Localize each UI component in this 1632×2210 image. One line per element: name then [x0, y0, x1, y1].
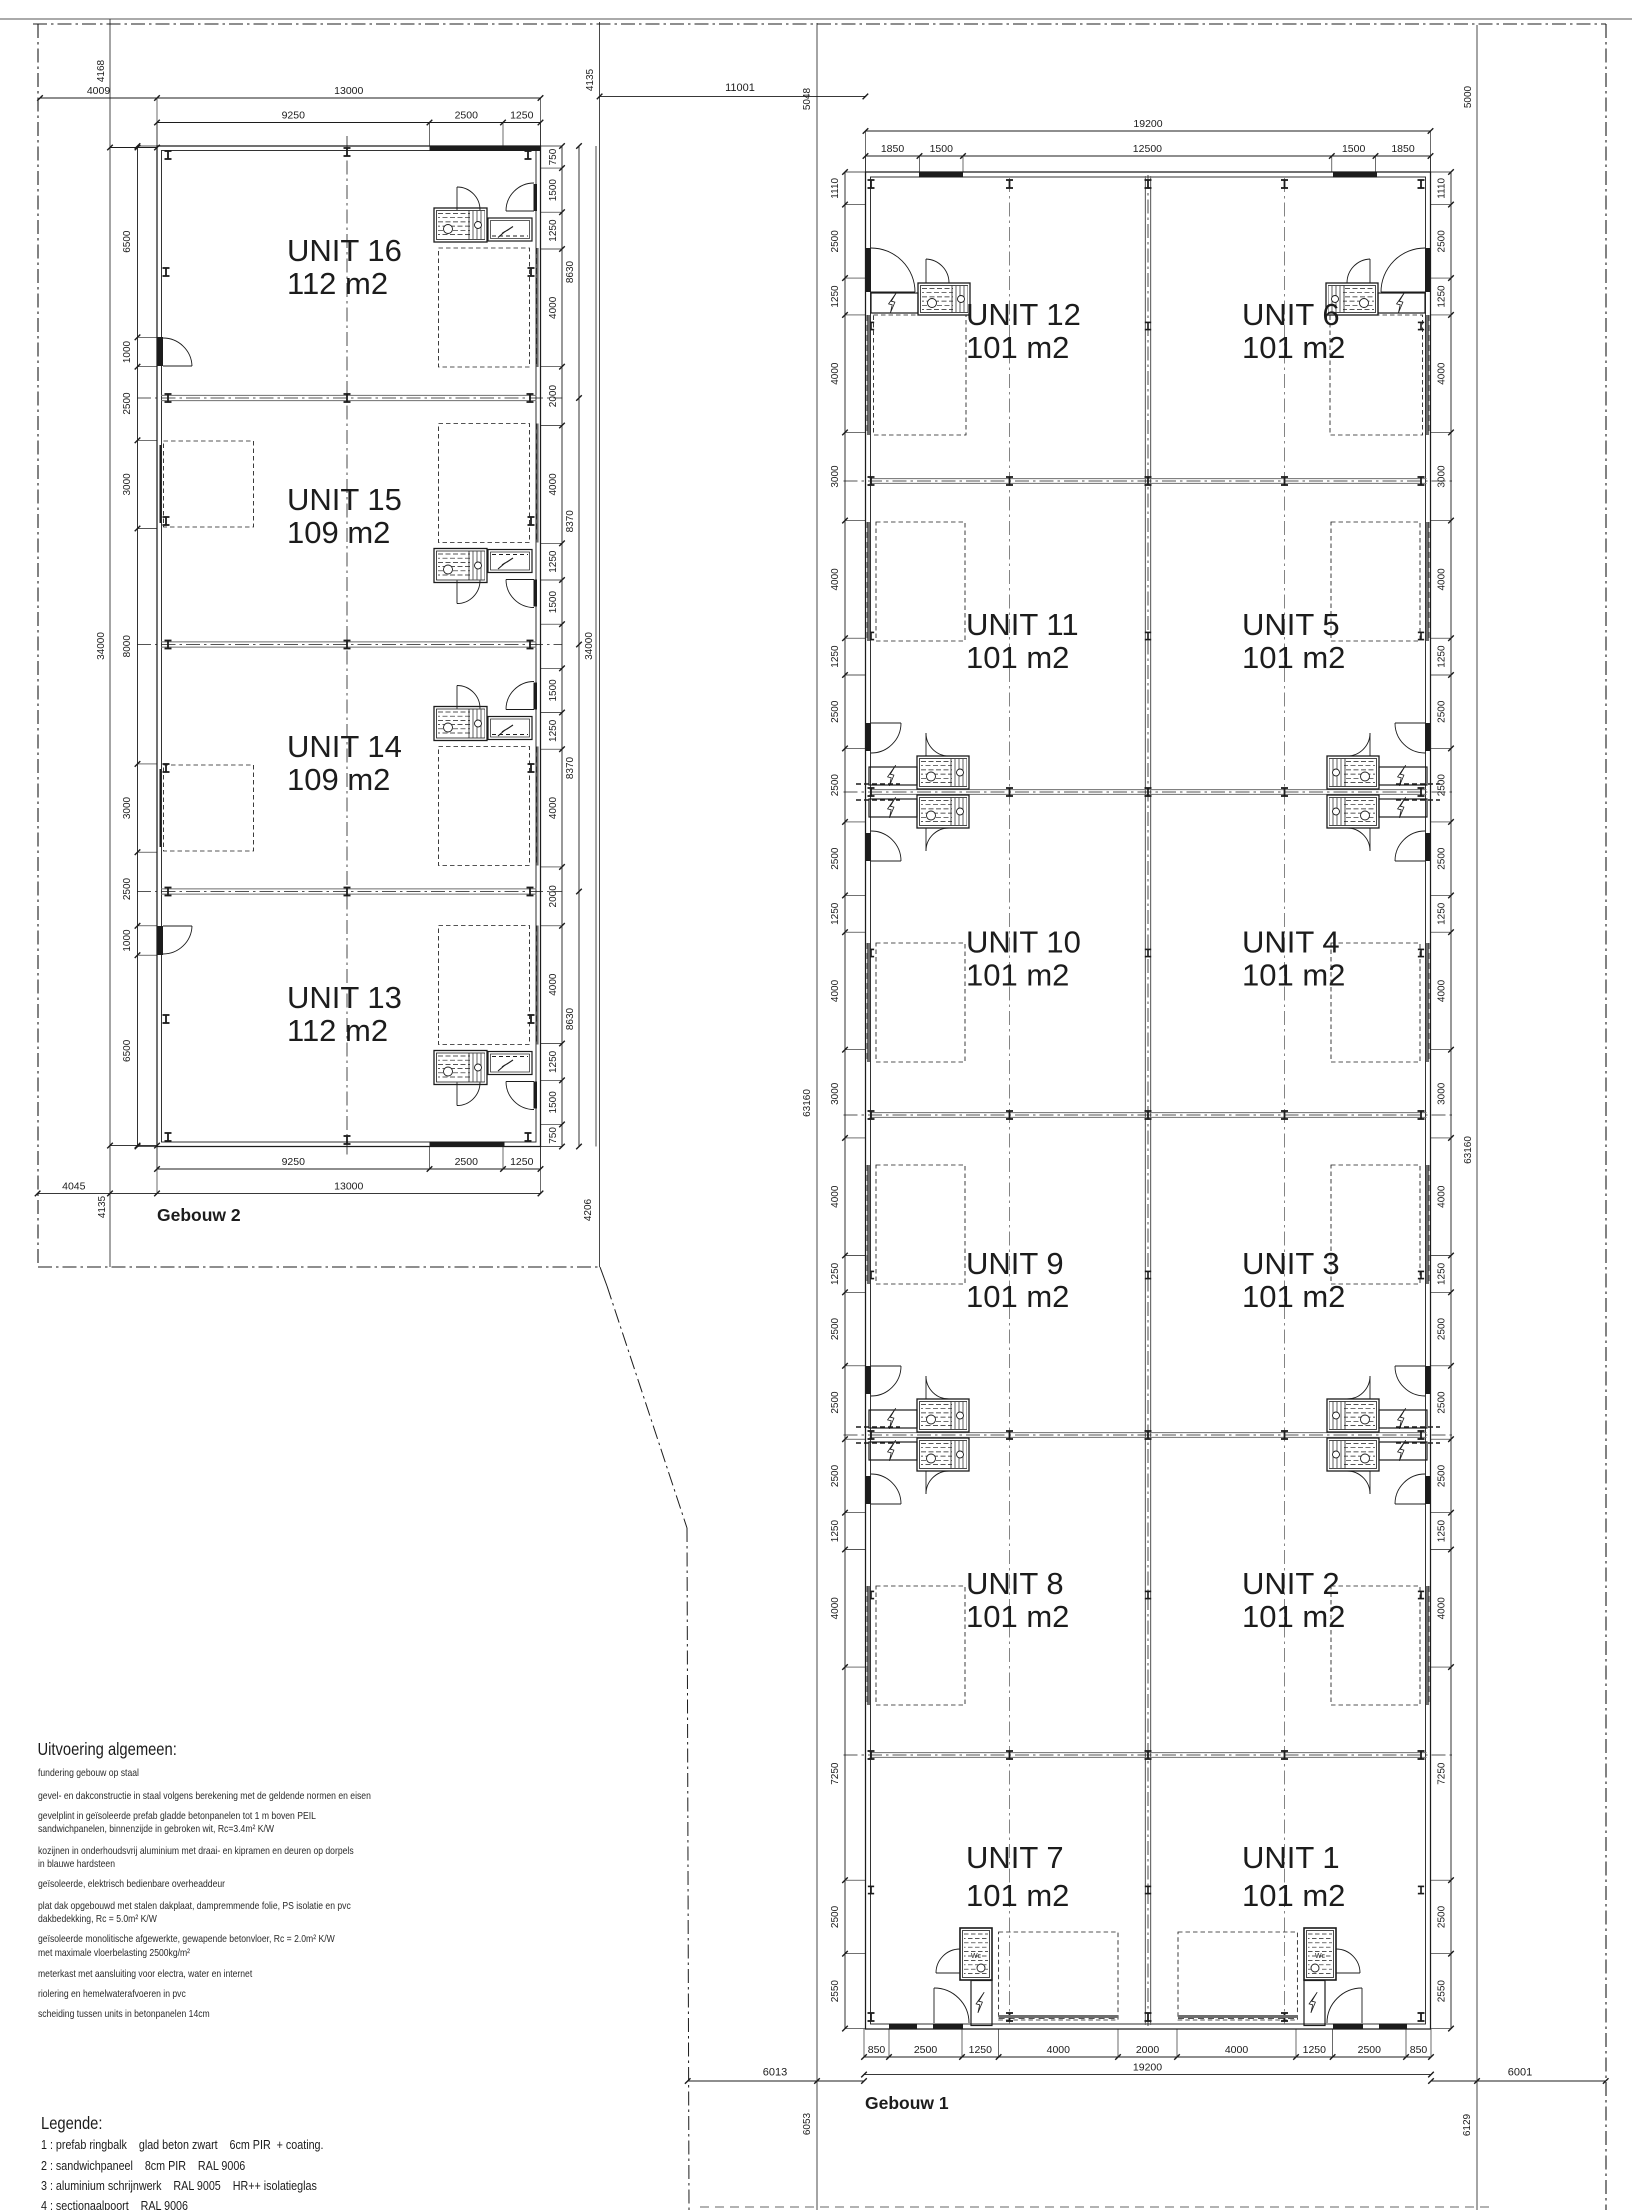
- svg-text:4000: 4000: [830, 1185, 841, 1208]
- svg-text:4000: 4000: [1225, 2044, 1249, 2056]
- svg-text:8370: 8370: [565, 756, 576, 779]
- svg-text:4000: 4000: [548, 973, 559, 996]
- svg-text:4000: 4000: [548, 796, 559, 819]
- svg-text:4135: 4135: [97, 1195, 108, 1218]
- svg-text:34000: 34000: [584, 632, 595, 660]
- svg-text:4009: 4009: [87, 85, 111, 97]
- svg-text:UNIT 13: UNIT 13: [287, 980, 402, 1015]
- svg-text:1250: 1250: [510, 1156, 534, 1168]
- svg-text:1500: 1500: [548, 179, 559, 202]
- svg-text:3000: 3000: [122, 796, 133, 819]
- svg-text:4 : sectionaalpoort RAL 900: 4 : sectionaalpoort RAL 9006: [41, 2199, 188, 2210]
- svg-text:1850: 1850: [1391, 143, 1415, 155]
- svg-text:2500: 2500: [1437, 774, 1448, 797]
- svg-text:5000: 5000: [1463, 85, 1474, 108]
- svg-text:meterkast met aansluiting voor: meterkast met aansluiting voor electra, …: [38, 1968, 253, 1980]
- svg-text:101 m2: 101 m2: [966, 640, 1069, 675]
- svg-text:gevelplint in geïsoleerde pref: gevelplint in geïsoleerde prefab gladde …: [38, 1810, 316, 1822]
- svg-text:dakbedekking, Rc = 5.0m² K/W: dakbedekking, Rc = 5.0m² K/W: [38, 1913, 158, 1925]
- svg-text:112 m2: 112 m2: [287, 1013, 388, 1048]
- svg-text:63160: 63160: [802, 1089, 813, 1117]
- svg-text:1500: 1500: [548, 591, 559, 614]
- svg-text:63160: 63160: [1463, 1136, 1474, 1164]
- svg-text:Gebouw 2: Gebouw 2: [157, 1205, 241, 1225]
- svg-text:4000: 4000: [830, 362, 841, 385]
- svg-text:2500: 2500: [1437, 700, 1448, 723]
- svg-text:4000: 4000: [1437, 979, 1448, 1002]
- svg-text:2500: 2500: [1437, 1464, 1448, 1487]
- svg-text:1250: 1250: [548, 550, 559, 573]
- svg-text:12500: 12500: [1133, 143, 1162, 155]
- svg-text:2500: 2500: [914, 2044, 938, 2056]
- svg-text:4000: 4000: [548, 296, 559, 319]
- svg-text:1 : prefab ringbalk glad be: 1 : prefab ringbalk glad beton zwart 6cm…: [41, 2138, 324, 2152]
- svg-text:1250: 1250: [830, 1520, 841, 1543]
- svg-text:1250: 1250: [830, 902, 841, 925]
- svg-text:1250: 1250: [548, 219, 559, 242]
- svg-text:1110: 1110: [830, 177, 841, 198]
- svg-text:1250: 1250: [1437, 1520, 1448, 1543]
- svg-text:Gebouw 1: Gebouw 1: [865, 2093, 949, 2113]
- svg-text:UNIT 12: UNIT 12: [966, 297, 1081, 332]
- svg-text:geïsoleerde monolitische afgew: geïsoleerde monolitische afgewerkte, gew…: [38, 1933, 336, 1945]
- svg-text:1250: 1250: [1437, 645, 1448, 668]
- svg-text:101 m2: 101 m2: [1242, 1599, 1345, 1634]
- svg-text:13000: 13000: [334, 85, 363, 97]
- svg-text:101 m2: 101 m2: [966, 330, 1069, 365]
- svg-text:101 m2: 101 m2: [1242, 1878, 1345, 1913]
- svg-text:4045: 4045: [62, 1180, 86, 1192]
- svg-text:109 m2: 109 m2: [287, 515, 390, 550]
- svg-text:1850: 1850: [881, 143, 905, 155]
- svg-text:UNIT 9: UNIT 9: [966, 1246, 1064, 1281]
- svg-text:8370: 8370: [565, 510, 576, 533]
- svg-text:101 m2: 101 m2: [1242, 640, 1345, 675]
- svg-text:1500: 1500: [930, 143, 954, 155]
- svg-text:7250: 7250: [830, 1762, 841, 1785]
- svg-text:2500: 2500: [830, 1905, 841, 1928]
- svg-text:19200: 19200: [1133, 118, 1162, 130]
- svg-text:plat dak opgebouwd met stalen: plat dak opgebouwd met stalen dakplaat, …: [38, 1900, 351, 1912]
- svg-text:8630: 8630: [565, 1007, 576, 1030]
- svg-text:4000: 4000: [1437, 568, 1448, 591]
- svg-text:6053: 6053: [802, 2112, 813, 2135]
- svg-text:1250: 1250: [548, 1050, 559, 1073]
- svg-text:UNIT 15: UNIT 15: [287, 482, 402, 517]
- svg-text:1250: 1250: [1437, 1262, 1448, 1285]
- svg-text:4000: 4000: [548, 473, 559, 496]
- svg-text:2000: 2000: [1136, 2044, 1160, 2056]
- svg-text:4206: 4206: [583, 1198, 594, 1221]
- svg-text:UNIT 8: UNIT 8: [966, 1566, 1064, 1601]
- svg-text:UNIT 4: UNIT 4: [1242, 925, 1340, 960]
- svg-text:2000: 2000: [548, 885, 559, 908]
- svg-text:Legende:: Legende:: [41, 2114, 102, 2134]
- svg-text:sandwichpanelen, binnenzijde i: sandwichpanelen, binnenzijde in gebroken…: [38, 1823, 275, 1835]
- svg-text:2550: 2550: [830, 1980, 841, 2003]
- svg-text:19200: 19200: [1133, 2062, 1162, 2074]
- svg-text:1500: 1500: [548, 679, 559, 702]
- svg-text:2000: 2000: [548, 385, 559, 408]
- svg-text:1250: 1250: [510, 110, 534, 122]
- svg-text:7250: 7250: [1437, 1762, 1448, 1785]
- svg-text:101 m2: 101 m2: [966, 1878, 1069, 1913]
- svg-text:2500: 2500: [830, 847, 841, 870]
- svg-text:109 m2: 109 m2: [287, 762, 390, 797]
- svg-text:4000: 4000: [1047, 2044, 1071, 2056]
- svg-text:5048: 5048: [802, 87, 813, 110]
- svg-text:1250: 1250: [830, 645, 841, 668]
- svg-text:6129: 6129: [1462, 2113, 1473, 2136]
- svg-text:1500: 1500: [548, 1091, 559, 1114]
- svg-text:2500: 2500: [455, 110, 479, 122]
- svg-text:2500: 2500: [830, 700, 841, 723]
- svg-text:4000: 4000: [830, 1597, 841, 1620]
- svg-text:met maximale vloerbelasting 25: met maximale vloerbelasting 2500kg/m²: [38, 1947, 191, 1959]
- svg-text:2500: 2500: [1437, 847, 1448, 870]
- svg-text:6500: 6500: [122, 230, 133, 253]
- svg-text:1500: 1500: [1342, 143, 1366, 155]
- svg-text:UNIT 3: UNIT 3: [1242, 1246, 1340, 1281]
- svg-text:3000: 3000: [1437, 465, 1448, 488]
- svg-text:2 : sandwichpaneel 8cm PIR: 2 : sandwichpaneel 8cm PIR RAL 9006: [41, 2159, 245, 2173]
- svg-text:kozijnen in onderhoudsvrij alu: kozijnen in onderhoudsvrij aluminium met…: [38, 1845, 354, 1857]
- svg-text:1110: 1110: [1437, 177, 1448, 198]
- svg-text:3000: 3000: [122, 473, 133, 496]
- svg-text:4135: 4135: [585, 68, 596, 91]
- svg-text:750: 750: [548, 148, 559, 165]
- svg-text:Wc: Wc: [1315, 1953, 1326, 1960]
- svg-text:3000: 3000: [830, 1082, 841, 1105]
- svg-text:fundering gebouw op staal: fundering gebouw op staal: [38, 1767, 139, 1779]
- svg-text:UNIT 14: UNIT 14: [287, 729, 402, 764]
- svg-text:2500: 2500: [1437, 1391, 1448, 1414]
- svg-text:101 m2: 101 m2: [1242, 1279, 1345, 1314]
- svg-text:4168: 4168: [96, 59, 107, 82]
- svg-text:2500: 2500: [1358, 2044, 1382, 2056]
- svg-text:2500: 2500: [122, 877, 133, 900]
- svg-text:riolering en hemelwaterafvoere: riolering en hemelwaterafvoeren in pvc: [38, 1988, 186, 2000]
- svg-text:2500: 2500: [1437, 230, 1448, 253]
- svg-text:3000: 3000: [1437, 1082, 1448, 1105]
- svg-text:2550: 2550: [1437, 1980, 1448, 2003]
- svg-text:UNIT 2: UNIT 2: [1242, 1566, 1340, 1601]
- svg-text:scheiding tussen units in beto: scheiding tussen units in betonpanelen 1…: [38, 2008, 210, 2020]
- svg-text:8000: 8000: [122, 635, 133, 658]
- svg-text:UNIT 16: UNIT 16: [287, 233, 402, 268]
- svg-text:9250: 9250: [282, 1156, 306, 1168]
- svg-text:6001: 6001: [1508, 2067, 1532, 2079]
- svg-text:1250: 1250: [1437, 285, 1448, 308]
- svg-text:850: 850: [868, 2044, 886, 2056]
- svg-text:1250: 1250: [969, 2044, 993, 2056]
- svg-text:2500: 2500: [830, 230, 841, 253]
- svg-text:750: 750: [548, 1127, 559, 1144]
- svg-text:geïsoleerde, elektrisch bedien: geïsoleerde, elektrisch bedienbare overh…: [38, 1878, 226, 1890]
- svg-text:3 : aluminium schrijnwerk R: 3 : aluminium schrijnwerk RAL 9005 HR++ …: [41, 2179, 317, 2193]
- svg-text:4000: 4000: [1437, 1597, 1448, 1620]
- svg-text:3000: 3000: [830, 465, 841, 488]
- svg-text:1250: 1250: [830, 1262, 841, 1285]
- svg-text:UNIT 1: UNIT 1: [1242, 1840, 1340, 1875]
- svg-text:11001: 11001: [725, 82, 755, 94]
- svg-text:101 m2: 101 m2: [966, 1279, 1069, 1314]
- svg-text:1250: 1250: [1437, 902, 1448, 925]
- svg-text:UNIT 5: UNIT 5: [1242, 607, 1340, 642]
- svg-text:2500: 2500: [1437, 1905, 1448, 1928]
- svg-text:UNIT 7: UNIT 7: [966, 1840, 1064, 1875]
- svg-text:34000: 34000: [96, 632, 107, 660]
- svg-text:1250: 1250: [1303, 2044, 1327, 2056]
- svg-text:2500: 2500: [830, 1317, 841, 1340]
- svg-text:8630: 8630: [565, 260, 576, 283]
- svg-text:1250: 1250: [548, 719, 559, 742]
- svg-text:4000: 4000: [830, 568, 841, 591]
- svg-text:UNIT 6: UNIT 6: [1242, 297, 1340, 332]
- svg-text:112 m2: 112 m2: [287, 266, 388, 301]
- svg-text:101 m2: 101 m2: [966, 1599, 1069, 1634]
- svg-text:Uitvoering algemeen:: Uitvoering algemeen:: [38, 1740, 177, 1760]
- svg-text:101 m2: 101 m2: [1242, 330, 1345, 365]
- svg-text:2500: 2500: [122, 392, 133, 415]
- svg-text:1000: 1000: [122, 340, 133, 363]
- svg-text:2500: 2500: [830, 1464, 841, 1487]
- svg-text:101 m2: 101 m2: [966, 958, 1069, 993]
- svg-text:4000: 4000: [1437, 1185, 1448, 1208]
- svg-text:2500: 2500: [455, 1156, 479, 1168]
- svg-text:Wc: Wc: [971, 1953, 982, 1960]
- svg-text:1250: 1250: [830, 285, 841, 308]
- svg-text:1000: 1000: [122, 929, 133, 952]
- svg-text:13000: 13000: [334, 1180, 363, 1192]
- svg-text:9250: 9250: [282, 110, 306, 122]
- svg-text:4000: 4000: [830, 979, 841, 1002]
- svg-text:UNIT 11: UNIT 11: [966, 607, 1079, 642]
- svg-text:6500: 6500: [122, 1039, 133, 1062]
- svg-text:6013: 6013: [763, 2067, 787, 2079]
- svg-text:2500: 2500: [1437, 1317, 1448, 1340]
- svg-text:2500: 2500: [830, 1391, 841, 1414]
- svg-text:UNIT 10: UNIT 10: [966, 925, 1081, 960]
- svg-text:gevel- en dakconstructie in st: gevel- en dakconstructie in staal volgen…: [38, 1790, 371, 1802]
- svg-text:4000: 4000: [1437, 362, 1448, 385]
- svg-text:850: 850: [1410, 2044, 1428, 2056]
- svg-text:101 m2: 101 m2: [1242, 958, 1345, 993]
- svg-text:in blauwe hardsteen: in blauwe hardsteen: [38, 1858, 115, 1870]
- svg-text:2500: 2500: [830, 774, 841, 797]
